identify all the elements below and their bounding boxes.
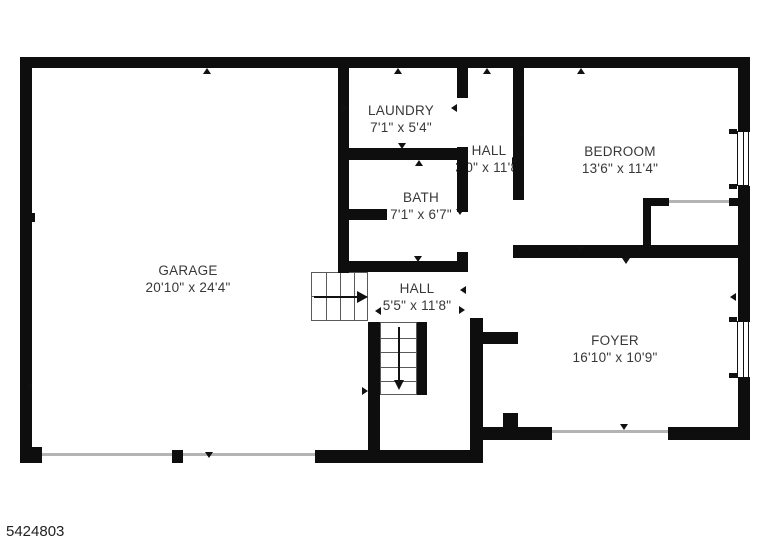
room-dims: 7'1" x 5'4" <box>368 119 434 136</box>
wall-outer-right-upper <box>738 57 750 132</box>
door-marker <box>456 209 464 215</box>
wall-garage-corner-foot <box>20 447 42 463</box>
wall-bedroom-bottom <box>513 245 750 258</box>
room-label-bedroom: BEDROOM 13'6" x 11'4" <box>582 143 658 177</box>
room-label-bath: BATH 7'1" x 6'7" <box>390 189 452 223</box>
wall-garage-door-post <box>172 450 183 463</box>
door-marker <box>577 246 585 252</box>
door-marker <box>362 387 368 395</box>
room-dims: 16'10" x 10'9" <box>572 349 657 366</box>
door-marker <box>415 160 423 166</box>
wall-laundry-right-upper <box>457 57 468 98</box>
stairs-down-arrow-head <box>394 380 404 390</box>
door-marker <box>451 104 457 112</box>
door-marker <box>375 307 381 315</box>
wall-foyer-bottom-right <box>668 427 750 440</box>
wall-garage-bottom <box>315 450 478 463</box>
door-marker <box>203 68 211 74</box>
wall-outer-top <box>20 57 750 68</box>
door-marker <box>577 68 585 74</box>
door-marker <box>620 424 628 430</box>
door-marker <box>460 286 466 294</box>
door-marker <box>512 157 518 165</box>
wall-bath-right-upper <box>457 147 468 212</box>
room-label-foyer: FOYER 16'10" x 10'9" <box>572 332 657 366</box>
room-name: FOYER <box>572 332 657 349</box>
garage-door-line-2 <box>183 453 315 456</box>
room-label-hall-lower: HALL 5'5" x 11'8" <box>383 280 452 314</box>
room-dims: 13'6" x 11'4" <box>582 160 658 177</box>
wall-foyer-closet-top <box>483 332 518 344</box>
door-marker <box>622 258 630 264</box>
stairs-down-arrow-shaft <box>398 327 400 381</box>
stairs-up-arrow-head <box>357 291 368 303</box>
window-tick <box>729 129 737 134</box>
wall-bedroom-closet-stub-left <box>643 198 669 206</box>
door-marker <box>26 382 32 390</box>
wall-foyer-left <box>470 318 483 463</box>
door-marker <box>394 68 402 74</box>
door-marker <box>459 306 465 314</box>
room-dims: 5'5" x 11'8" <box>383 297 452 314</box>
wall-foyer-closet-bottom <box>503 413 518 429</box>
wall-garage-laundry <box>338 57 349 273</box>
door-marker <box>483 68 491 74</box>
room-name: HALL <box>383 280 452 297</box>
stairs-down <box>380 322 417 395</box>
room-dims: 20'10" x 24'4" <box>145 279 230 296</box>
bedroom-window <box>737 131 749 186</box>
wall-outer-left <box>20 57 32 463</box>
room-label-garage: GARAGE 20'10" x 24'4" <box>145 262 230 296</box>
garage-door-line-1 <box>42 453 172 456</box>
window-tick <box>729 317 737 322</box>
wall-hall-bedroom <box>513 57 524 200</box>
room-name: GARAGE <box>145 262 230 279</box>
door-marker <box>730 293 736 301</box>
window-tick <box>729 373 737 378</box>
wall-stairs-left <box>368 322 380 463</box>
door-marker <box>517 130 523 138</box>
floorplan: GARAGE 20'10" x 24'4" LAUNDRY 7'1" x 5'4… <box>0 0 768 542</box>
room-label-laundry: LAUNDRY 7'1" x 5'4" <box>368 102 434 136</box>
room-dims: 7'1" x 6'7" <box>390 206 452 223</box>
stairs-up <box>311 272 368 321</box>
room-name: BATH <box>390 189 452 206</box>
front-door-line <box>552 430 668 433</box>
door-marker <box>205 452 213 458</box>
door-marker <box>342 104 348 112</box>
wall-left-notch <box>32 213 35 222</box>
room-name: BEDROOM <box>582 143 658 160</box>
stairs-up-arrow-shaft <box>314 296 358 298</box>
foyer-window <box>737 321 749 378</box>
wall-bath-bottom <box>338 261 468 272</box>
room-name: LAUNDRY <box>368 102 434 119</box>
door-marker <box>398 143 406 149</box>
wall-bedroom-closet-stub-right <box>729 198 738 206</box>
wall-stairs-right <box>417 322 427 395</box>
wall-bath-stub <box>349 209 387 220</box>
door-marker <box>414 256 422 262</box>
closet-door-line <box>669 200 729 203</box>
wall-laundry-bath <box>338 148 468 160</box>
listing-ref-number: 5424803 <box>6 523 64 540</box>
window-tick <box>729 184 737 189</box>
